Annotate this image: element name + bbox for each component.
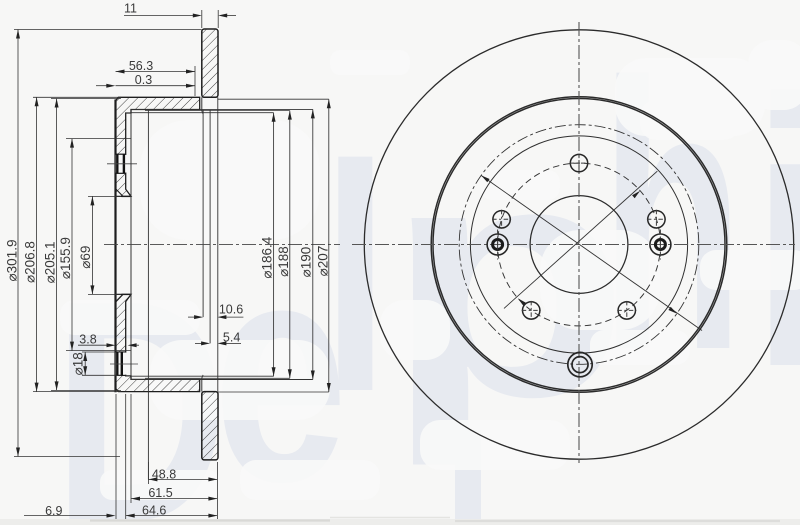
svg-text:⌀205.1: ⌀205.1 [43,241,58,283]
svg-text:⌀186.4: ⌀186.4 [260,236,275,278]
svg-text:48.8: 48.8 [152,467,176,481]
svg-text:⌀188: ⌀188 [276,246,291,277]
svg-text:5.4: 5.4 [223,331,240,345]
svg-text:64.6: 64.6 [142,504,166,518]
svg-text:⌀18: ⌀18 [70,352,85,375]
svg-text:⌀69: ⌀69 [78,246,93,269]
svg-text:10.6: 10.6 [219,303,243,317]
svg-text:⌀206.8: ⌀206.8 [23,241,38,283]
svg-text:l: l [321,99,390,459]
svg-text:⌀301.9: ⌀301.9 [5,240,20,282]
svg-text:61.5: 61.5 [148,486,172,500]
svg-text:⌀190: ⌀190 [299,247,314,278]
svg-text:0.3: 0.3 [135,73,152,87]
svg-text:⌀207: ⌀207 [316,246,331,277]
svg-text:56.3: 56.3 [129,59,153,73]
svg-text:3.8: 3.8 [79,332,96,346]
svg-text:11: 11 [124,1,137,15]
svg-text:6.9: 6.9 [45,504,62,518]
svg-text:⌀155.9: ⌀155.9 [58,237,73,279]
